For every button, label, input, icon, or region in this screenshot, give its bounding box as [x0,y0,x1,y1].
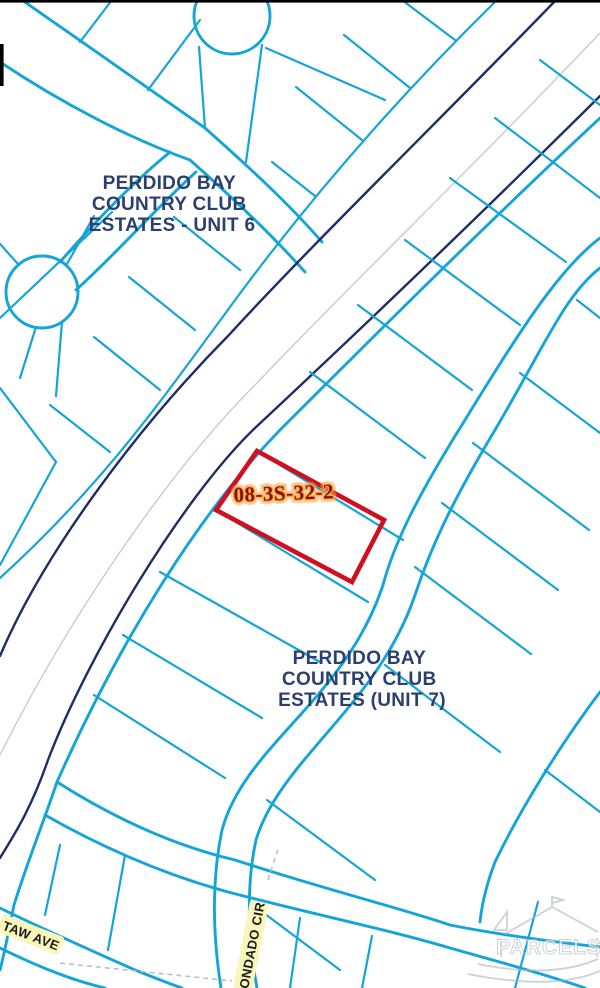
top-border-line [0,0,600,3]
svg-text:08-3S-32-2: 08-3S-32-2 [233,479,334,506]
taw-ave-leader-line [60,963,232,981]
road-centerline [0,33,600,755]
road-edge-outer [0,0,556,656]
cul-de-sac-circle-left [6,256,78,328]
road-right-of-way [0,118,600,970]
map-canvas[interactable]: 08-3S-32-2 08-3S-32-2 08-3S-32-2 PERDIDO… [0,0,600,988]
map-viewport: 08-3S-32-2 08-3S-32-2 08-3S-32-2 PERDIDO… [0,0,600,988]
parcel-id-label: 08-3S-32-2 08-3S-32-2 08-3S-32-2 [233,479,334,506]
svg-text:ONDADO CIR: ONDADO CIR [236,901,268,988]
taw-ave-lower [0,948,105,988]
region-label-unit7: PERDIDO BAY COUNTRY CLUB ESTATES (UNIT 7… [278,648,446,711]
taw-ave-upper [0,908,182,988]
selected-parcel-outline[interactable] [216,451,384,582]
bottom-street-upper [57,782,600,947]
region-label-unit6: PERDIDO BAY COUNTRY CLUB ESTATES - UNIT … [89,173,256,236]
lower-right-arc-street [480,692,600,922]
coronado-circle-street [214,238,600,988]
left-edge-mark [0,44,4,86]
street-label-taw-ave: TAW AVE [0,914,65,955]
parcels-watermark-logo: PARCELS [468,897,600,982]
street-label-coronado-cir: ONDADO CIR [233,900,269,988]
cul-de-sac-circle-top [194,0,270,54]
svg-text:PARCELS: PARCELS [496,936,600,959]
